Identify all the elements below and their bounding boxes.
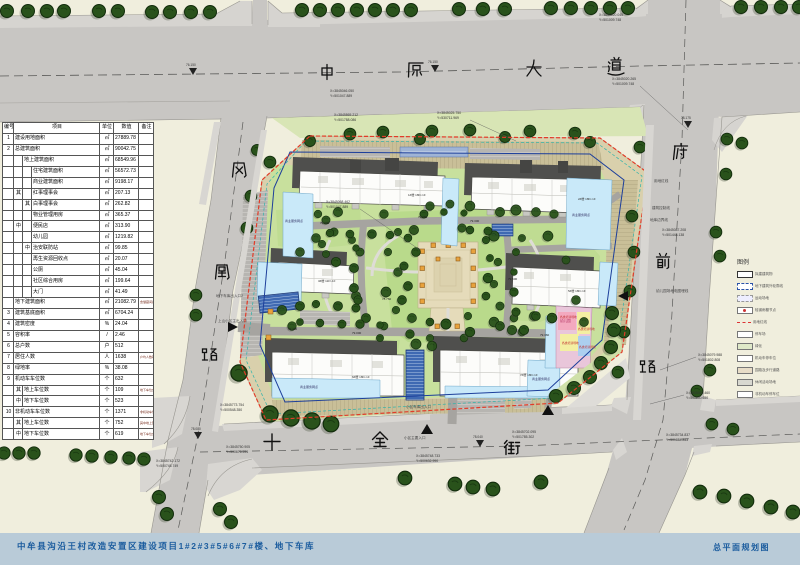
- svg-text:X=3845079.988: X=3845079.988: [698, 353, 722, 357]
- svg-text:79.060: 79.060: [418, 215, 428, 219]
- svg-text:商业服务网点: 商业服务网点: [285, 218, 303, 223]
- svg-text:Y=501785.302: Y=501785.302: [512, 435, 534, 439]
- svg-text:76.150: 76.150: [428, 60, 438, 64]
- svg-text:X=3845865.212: X=3845865.212: [334, 113, 358, 117]
- svg-text:3#楼 11F/-1F: 3#楼 11F/-1F: [318, 278, 336, 283]
- svg-text:6#楼 18F/-1F: 6#楼 18F/-1F: [352, 374, 370, 379]
- svg-text:商业服务网点: 商业服务网点: [300, 384, 318, 389]
- svg-text:X=3845046.050: X=3845046.050: [330, 89, 354, 93]
- svg-text:Y=500632.990: Y=500632.990: [416, 459, 438, 463]
- svg-text:Y=501047.889: Y=501047.889: [326, 205, 348, 209]
- svg-text:Y=500745.749: Y=500745.749: [156, 464, 178, 468]
- svg-text:Y=500548.350: Y=500548.350: [220, 408, 242, 412]
- svg-text:79.000: 79.000: [320, 221, 330, 225]
- svg-text:幼儿园场地电图埋线: 幼儿园场地电图埋线: [656, 288, 689, 293]
- svg-text:79.000: 79.000: [352, 331, 362, 335]
- svg-text:X=3845020.045: X=3845020.045: [599, 13, 623, 17]
- svg-text:79.300: 79.300: [470, 219, 480, 223]
- svg-text:Y=530711.969: Y=530711.969: [437, 116, 459, 120]
- svg-text:用地红线: 用地红线: [654, 178, 669, 183]
- svg-text:79.500: 79.500: [508, 277, 518, 281]
- svg-text:Y=501884.843: Y=501884.843: [666, 438, 688, 442]
- svg-text:X=3845750.905: X=3845750.905: [226, 445, 250, 449]
- svg-text:地下车库出入口2: 地下车库出入口2: [216, 293, 243, 298]
- svg-text:76.150: 76.150: [186, 63, 196, 67]
- svg-text:X=3845087.208: X=3845087.208: [662, 228, 686, 232]
- svg-text:2#楼 18F/-1F: 2#楼 18F/-1F: [578, 196, 596, 201]
- svg-text:建筑控制线: 建筑控制线: [652, 205, 670, 210]
- svg-text:Y=500676.594: Y=500676.594: [226, 450, 248, 454]
- svg-text:X=3845773.754: X=3845773.754: [220, 403, 244, 407]
- svg-text:78.760: 78.760: [382, 297, 392, 301]
- svg-text:上山小区主出入口: 上山小区主出入口: [218, 318, 247, 323]
- svg-text:X=3845025.750: X=3845025.750: [437, 111, 461, 115]
- svg-text:Y=501448.138: Y=501448.138: [662, 233, 684, 237]
- svg-text:79.460: 79.460: [288, 327, 298, 331]
- svg-text:Y=501047.889: Y=501047.889: [330, 94, 352, 98]
- svg-text:5#楼 18F/-1F: 5#楼 18F/-1F: [568, 288, 586, 293]
- svg-text:X=3845702.095: X=3845702.095: [512, 430, 536, 434]
- svg-text:小区车库出入口: 小区车库出入口: [406, 404, 432, 409]
- svg-text:商业服务网点: 商业服务网点: [572, 212, 590, 217]
- svg-text:X=3845062.460: X=3845062.460: [686, 391, 710, 395]
- svg-text:78.080: 78.080: [191, 427, 201, 431]
- svg-text:各类培训场地: 各类培训场地: [560, 315, 577, 319]
- svg-text:小区主要入口: 小区主要入口: [404, 435, 426, 440]
- svg-text:Y=501009.748: Y=501009.748: [612, 82, 634, 86]
- svg-text:X=3845748.733: X=3845748.733: [416, 454, 440, 458]
- svg-text:X=3845020.265: X=3845020.265: [612, 77, 636, 81]
- svg-text:79.360: 79.360: [540, 333, 550, 337]
- svg-text:地库边界线: 地库边界线: [650, 217, 668, 222]
- svg-text:Y=501802.808: Y=501802.808: [698, 358, 720, 362]
- svg-text:Y=501788.086: Y=501788.086: [334, 118, 356, 122]
- svg-text:Y=501850.650: Y=501850.650: [686, 396, 708, 400]
- svg-text:商业服务网点: 商业服务网点: [532, 376, 550, 381]
- svg-text:X=3845068.462: X=3845068.462: [326, 200, 350, 204]
- svg-text:各类培训场地: 各类培训场地: [578, 327, 595, 331]
- svg-text:X=3845734.837: X=3845734.837: [666, 433, 690, 437]
- svg-text:78.040: 78.040: [473, 435, 483, 439]
- svg-text:各类培训场地: 各类培训场地: [579, 345, 596, 349]
- svg-text:Y=501009.748: Y=501009.748: [599, 18, 621, 22]
- svg-text:1#楼 18F/-1F: 1#楼 18F/-1F: [408, 192, 426, 197]
- svg-text:各类培训场地: 各类培训场地: [562, 341, 579, 345]
- svg-text:X=3845742.172: X=3845742.172: [156, 459, 180, 463]
- svg-text:78.175: 78.175: [681, 116, 691, 120]
